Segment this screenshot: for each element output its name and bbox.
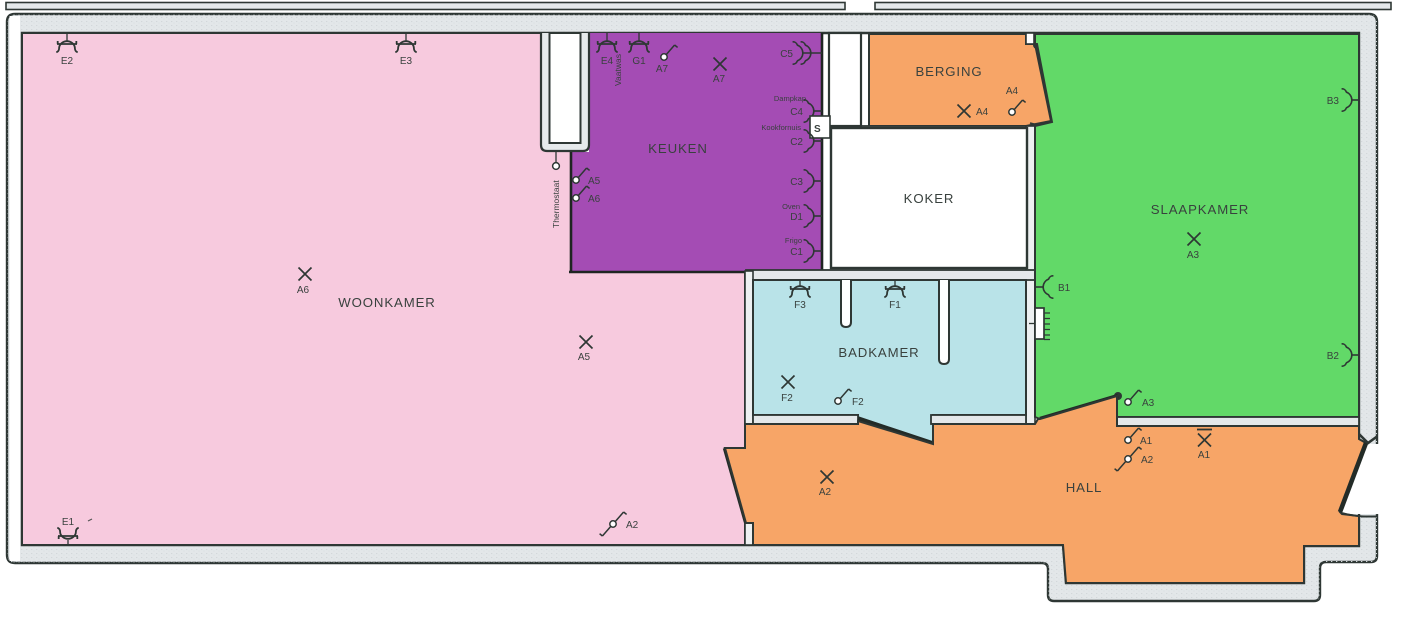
svg-text:HALL: HALL: [1066, 480, 1103, 495]
svg-text:E4: E4: [601, 56, 614, 67]
svg-text:A4: A4: [1006, 86, 1019, 97]
svg-text:A7: A7: [713, 74, 726, 85]
svg-text:A7: A7: [656, 64, 669, 75]
svg-text:A5: A5: [588, 176, 601, 187]
svg-text:D1: D1: [790, 212, 803, 223]
svg-text:G1: G1: [632, 56, 646, 67]
svg-text:KOKER: KOKER: [904, 191, 955, 206]
svg-text:Oven: Oven: [782, 202, 800, 211]
svg-text:F2: F2: [781, 393, 793, 404]
svg-text:Kookfornuis: Kookfornuis: [761, 123, 801, 132]
svg-text:E2: E2: [61, 56, 74, 67]
svg-text:A6: A6: [297, 285, 310, 296]
svg-text:A2: A2: [1141, 455, 1154, 466]
svg-text:Dampkap: Dampkap: [774, 94, 806, 103]
svg-text:A1: A1: [1140, 436, 1153, 447]
svg-text:E3: E3: [400, 56, 413, 67]
svg-text:B3: B3: [1327, 96, 1340, 107]
svg-text:F3: F3: [794, 300, 806, 311]
svg-text:KEUKEN: KEUKEN: [648, 141, 708, 156]
svg-text:A1: A1: [1198, 450, 1211, 461]
svg-text:A5: A5: [578, 352, 591, 363]
svg-text:C2: C2: [790, 137, 803, 148]
svg-text:A3: A3: [1187, 250, 1200, 261]
svg-text:Frigo: Frigo: [785, 236, 802, 245]
svg-text:BERGING: BERGING: [915, 64, 982, 79]
svg-text:C4: C4: [790, 107, 803, 118]
svg-text:C3: C3: [790, 177, 803, 188]
svg-text:S: S: [814, 124, 821, 135]
svg-text:BADKAMER: BADKAMER: [838, 345, 919, 360]
svg-text:A2: A2: [819, 487, 832, 498]
svg-text:A4: A4: [976, 107, 989, 118]
svg-text:C5: C5: [780, 49, 793, 60]
svg-text:A2: A2: [626, 520, 639, 531]
svg-text:B1: B1: [1058, 283, 1071, 294]
svg-text:A6: A6: [588, 194, 601, 205]
svg-text:Thermostaat: Thermostaat: [551, 180, 561, 228]
svg-text:C1: C1: [790, 247, 803, 258]
svg-text:Vaatwas: Vaatwas: [613, 54, 623, 86]
svg-text:WOONKAMER: WOONKAMER: [338, 295, 435, 310]
svg-text:F2: F2: [852, 397, 864, 408]
svg-text:E1: E1: [62, 517, 75, 528]
svg-text:F1: F1: [889, 300, 901, 311]
svg-text:B2: B2: [1327, 351, 1340, 362]
svg-text:A3: A3: [1142, 398, 1155, 409]
svg-text:SLAAPKAMER: SLAAPKAMER: [1151, 202, 1249, 217]
